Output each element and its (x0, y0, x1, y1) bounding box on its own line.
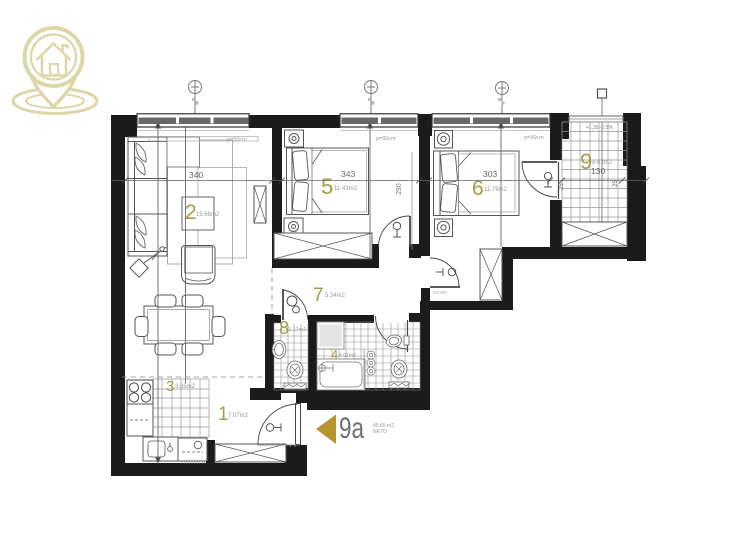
svg-text:1: 1 (218, 404, 229, 425)
svg-text:5: 5 (321, 174, 333, 199)
svg-text:5.34m2: 5.34m2 (325, 293, 346, 299)
svg-text:7: 7 (313, 285, 324, 306)
svg-text:p=90cm: p=90cm (376, 136, 396, 142)
svg-text:2.17m2: 2.17m2 (288, 327, 306, 333)
svg-text:11.79m2: 11.79m2 (484, 187, 508, 193)
svg-text:3: 3 (166, 378, 174, 395)
svg-text:+1.35 -0.5%: +1.35 -0.5% (586, 125, 614, 131)
svg-text:25: 25 (559, 183, 565, 190)
svg-text:130: 130 (591, 166, 605, 176)
svg-text:9a: 9a (339, 412, 364, 445)
svg-text:303: 303 (483, 169, 497, 179)
svg-text:25: 25 (613, 180, 619, 187)
svg-text:340: 340 (189, 170, 203, 180)
svg-text:80/205: 80/205 (433, 290, 447, 295)
svg-text:NETO: NETO (373, 429, 387, 435)
svg-text:3.85m2: 3.85m2 (175, 384, 196, 390)
svg-text:4.01m2: 4.01m2 (339, 353, 356, 359)
svg-text:343: 343 (341, 169, 355, 179)
svg-text:15.68m2: 15.68m2 (196, 212, 220, 218)
svg-text:290: 290 (396, 183, 403, 195)
svg-text:2: 2 (185, 201, 197, 224)
svg-text:11.43m2: 11.43m2 (334, 186, 358, 192)
svg-text:7.07m2: 7.07m2 (228, 413, 249, 419)
svg-text:p=90cm: p=90cm (524, 135, 544, 141)
